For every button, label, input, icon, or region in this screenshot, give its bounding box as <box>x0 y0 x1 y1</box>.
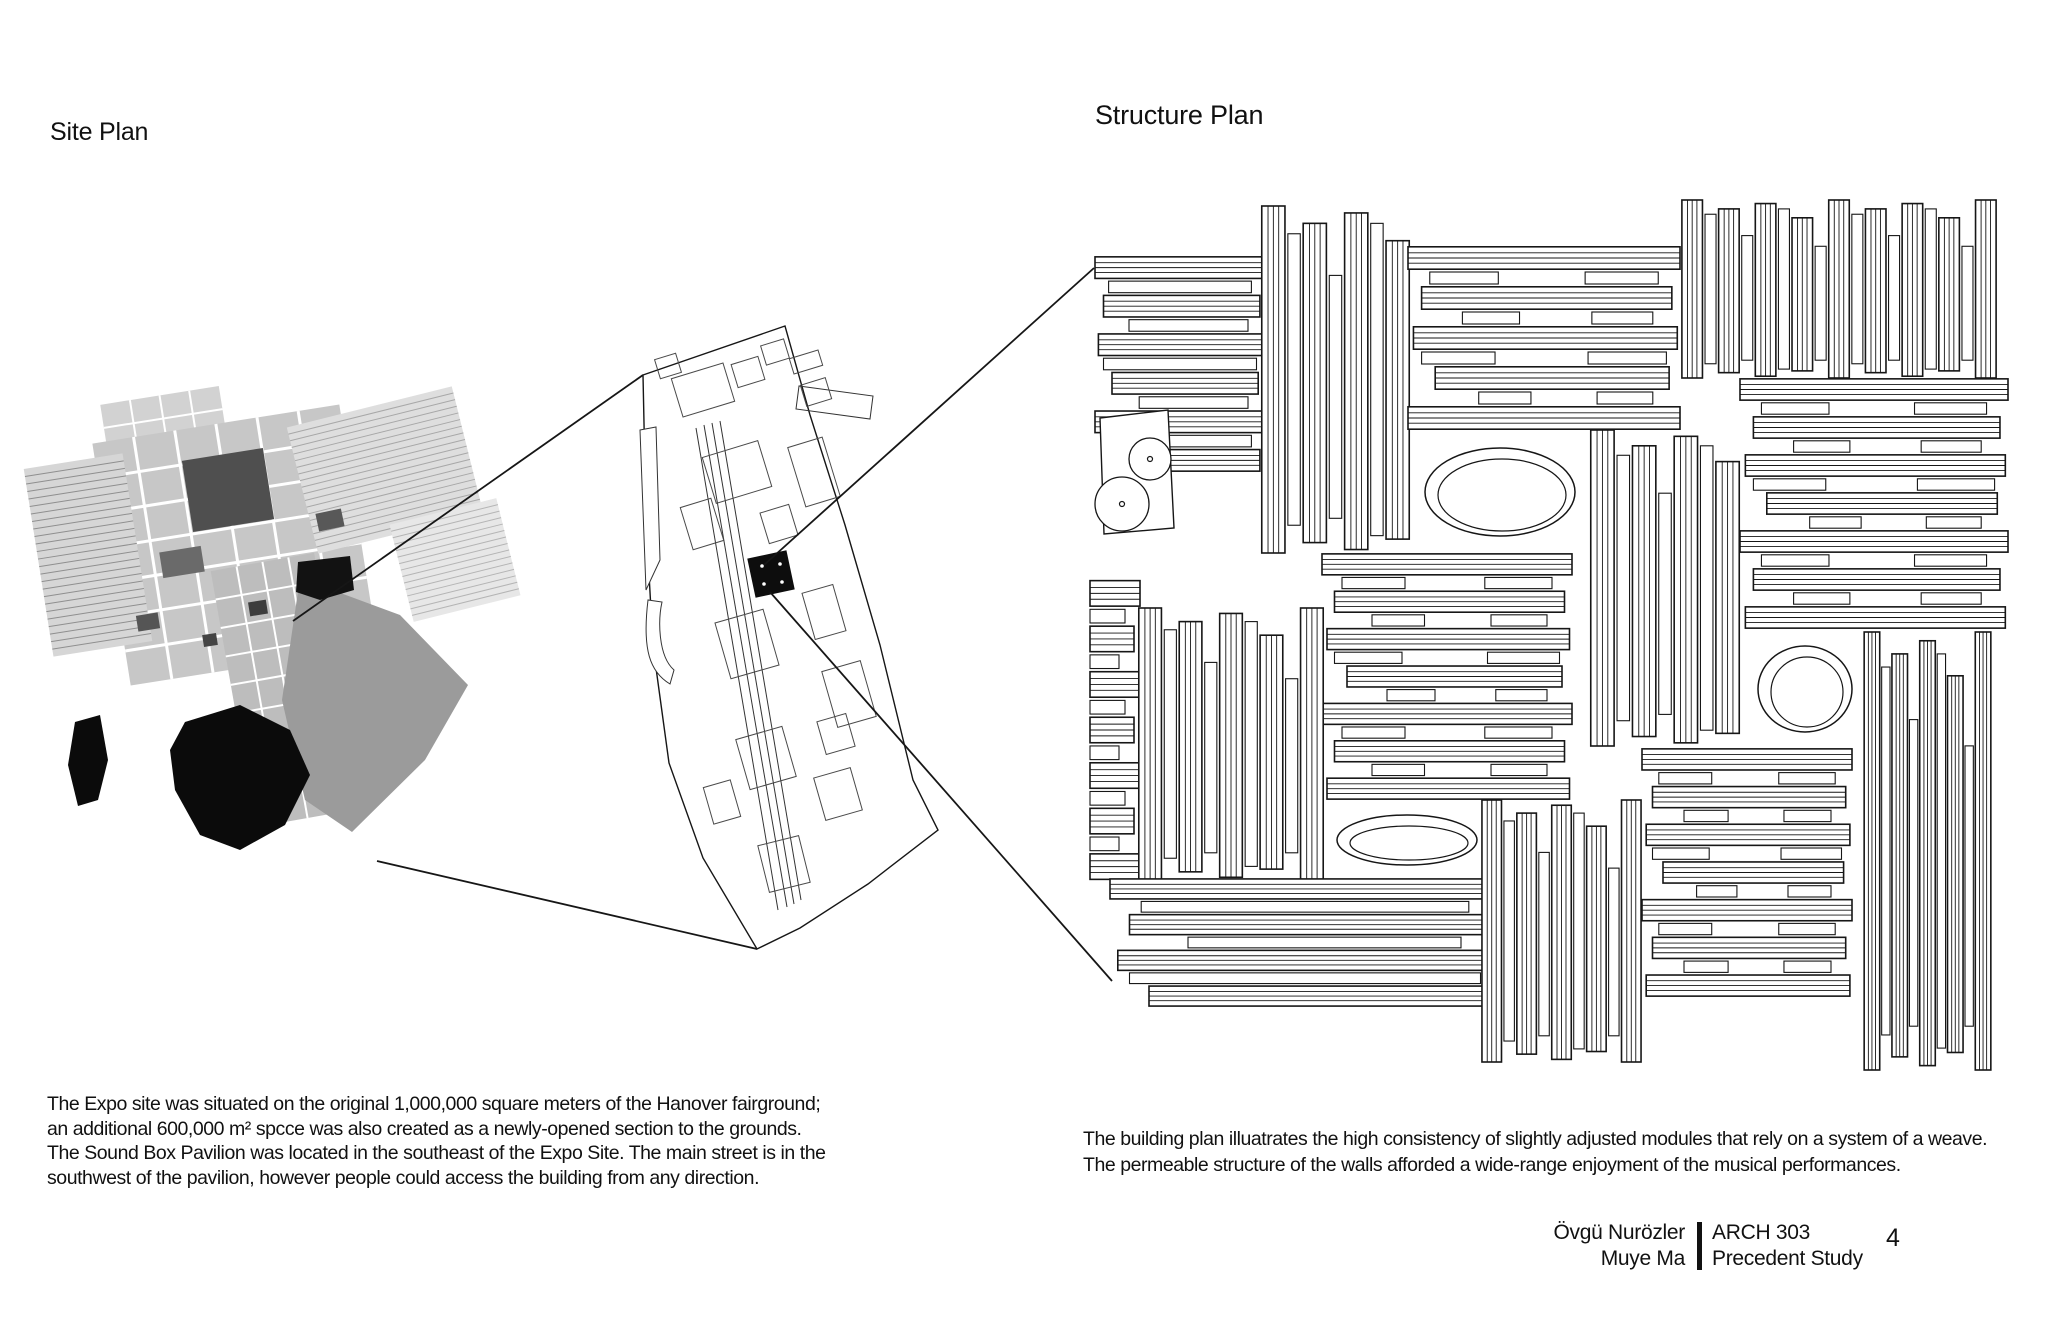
caption-line: The Sound Box Pavilion was located in th… <box>47 1141 826 1166</box>
slat-module <box>1408 247 1680 429</box>
slat-module <box>1740 379 2008 628</box>
slat-module <box>1864 632 1991 1070</box>
caption-line: The permeable structure of the walls aff… <box>1083 1152 1987 1178</box>
stage-ellipse <box>1337 815 1477 865</box>
structure-plan-caption: The building plan illuatrates the high c… <box>1083 1126 1987 1178</box>
author-names: Övgü Nurözler Muye Ma <box>1460 1220 1685 1272</box>
caption-line: southwest of the pavilion, however peopl… <box>47 1166 826 1191</box>
slat-module <box>1090 581 1140 880</box>
stage-ellipse <box>1425 448 1575 536</box>
slat-module <box>1591 430 1740 746</box>
site-plan-caption: The Expo site was situated on the origin… <box>47 1092 826 1190</box>
stage-ellipse <box>1758 646 1852 732</box>
author-name: Övgü Nurözler <box>1460 1220 1685 1246</box>
author-name: Muye Ma <box>1460 1246 1685 1272</box>
slat-module <box>1110 879 1500 1006</box>
slat-module <box>1262 206 1409 553</box>
slat-module <box>1642 749 1852 996</box>
precedent-study-slide: Site Plan Structure Plan The Expo site w… <box>0 0 2048 1325</box>
caption-line: an additional 600,000 m² spcce was also … <box>47 1117 826 1142</box>
caption-line: The Expo site was situated on the origin… <box>47 1092 826 1117</box>
slat-module <box>1139 608 1323 880</box>
expo-outline-plan <box>640 326 938 949</box>
site-plan-map <box>24 386 521 850</box>
structure-plan-drawing <box>1090 200 2008 1070</box>
slat-module <box>1682 200 1996 378</box>
slat-module <box>1482 800 1641 1062</box>
credits-block: Övgü Nurözler Muye Ma ARCH 303 Precedent… <box>1460 1220 1863 1272</box>
credits-divider <box>1697 1222 1702 1270</box>
page-number: 4 <box>1886 1224 1900 1253</box>
caption-line: The building plan illuatrates the high c… <box>1083 1126 1987 1152</box>
slat-module <box>1322 554 1572 799</box>
course-code: ARCH 303 <box>1712 1220 1863 1246</box>
project-type: Precedent Study <box>1712 1246 1863 1272</box>
course-info: ARCH 303 Precedent Study <box>1712 1220 1863 1272</box>
